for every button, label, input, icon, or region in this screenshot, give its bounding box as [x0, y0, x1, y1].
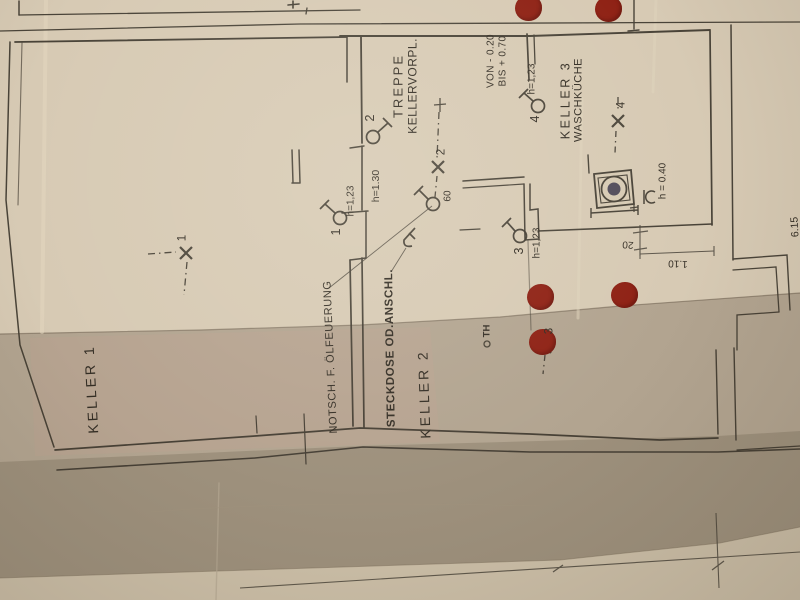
leader-lines: [329, 206, 432, 288]
stair-level-to: BIS + 0.70: [497, 34, 509, 88]
wall-light-4-symbol: [532, 100, 545, 113]
room-label-kellervorplatz: KELLERVORPL.: [407, 38, 421, 134]
wall-light-4-height: h=1,23: [526, 64, 538, 95]
wall-light-3-height: h=1,23: [531, 228, 543, 259]
ceiling-light-3-number: 3: [543, 328, 556, 334]
ceiling-light-1-cross: [180, 247, 192, 259]
stair-level-from: VON - 0.20: [486, 34, 497, 88]
socket-symbol: [404, 228, 415, 246]
ceiling-light-4-number: 4: [615, 102, 628, 108]
sink-height-label: h = 0.40: [657, 163, 669, 199]
ceiling-light-2-cross: [432, 161, 444, 173]
ceiling-light-2-number: 2: [435, 149, 448, 155]
room-label-waschkueche: WASCHKÜCHE: [573, 58, 586, 142]
red-marker-dot-3: [527, 284, 554, 310]
dimension-60: 60: [442, 190, 454, 201]
thermostat-label: TH: [483, 325, 494, 338]
stair-level-note: VON - 0.20 BIS + 0.70: [486, 34, 509, 88]
wall-light-4-number: 4: [528, 116, 542, 123]
wall-light-1-number: 1: [329, 229, 343, 236]
dimension-20: 20: [622, 238, 634, 250]
room-label-keller-2: KELLER 2: [414, 349, 433, 439]
tap-symbol: [644, 190, 655, 204]
wall-light-2-symbol: [367, 131, 380, 144]
paper-shading: [0, 293, 800, 600]
room-label-treppe: TREPPE KELLERVORPL.: [392, 38, 421, 134]
stair-door-height-label: h=1.30: [370, 170, 382, 202]
light-symbols: [320, 89, 545, 347]
washing-machine-symbol: [591, 170, 655, 218]
wall-light-2-number: 2: [363, 115, 377, 122]
floor-plan-photo: KELLER 1 KELLER 2 KELLER 3 WASCHKÜCHE TR…: [0, 0, 800, 600]
room-label-keller-3: KELLER 3 WASCHKÜCHE: [558, 58, 585, 142]
wall-light-1-height: h=1,23: [345, 186, 357, 217]
red-marker-dot-4: [611, 282, 638, 308]
ceiling-light-4-cross: [612, 115, 624, 127]
wall-light-3-number: 3: [512, 248, 526, 255]
dimension-1-10: 1.10: [668, 257, 688, 269]
room-label-treppe-name: TREPPE: [391, 54, 406, 118]
dimension-6-15: 6.15: [788, 216, 800, 237]
ceiling-light-1-number: 1: [176, 235, 189, 241]
socket-label: STECKDOSE OD.ANSCHL.: [383, 269, 399, 428]
room-label-keller-3-name: KELLER 3: [558, 61, 572, 139]
